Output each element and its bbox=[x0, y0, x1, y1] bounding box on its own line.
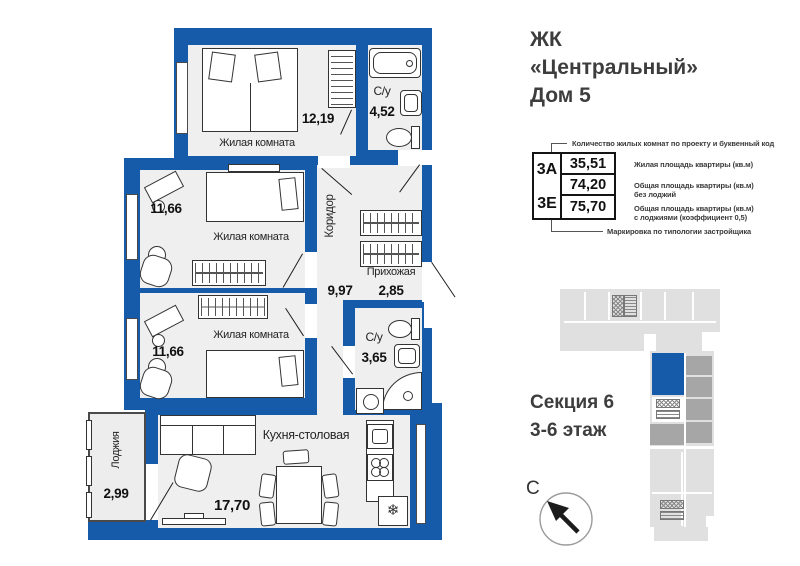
minimap-elevator-icon bbox=[656, 399, 680, 408]
toilet-icon bbox=[386, 128, 412, 147]
minimap-stairs-icon bbox=[612, 295, 624, 317]
minimap-elevator-icon bbox=[624, 295, 637, 317]
window bbox=[126, 194, 138, 260]
project-title-line1: ЖК bbox=[530, 26, 698, 54]
room-label: С/у bbox=[360, 330, 388, 344]
door-opening bbox=[305, 252, 317, 288]
minimap-divider bbox=[564, 321, 716, 323]
room-label: Прихожая bbox=[360, 266, 422, 278]
room-area: 9,97 bbox=[318, 283, 362, 298]
spec-note-living: Жилая площадь квартиры (кв.м) bbox=[634, 160, 794, 169]
door-opening bbox=[305, 304, 317, 338]
compass-north-label: С bbox=[526, 478, 540, 500]
pillow-icon bbox=[208, 51, 236, 82]
section-label-line1: Секция 6 bbox=[530, 392, 614, 414]
minimap-building-stem-foot bbox=[654, 527, 708, 541]
wardrobe-icon bbox=[198, 295, 268, 319]
washing-machine-icon bbox=[356, 388, 384, 414]
minimap-unit bbox=[686, 377, 712, 397]
minimap-notch bbox=[702, 332, 720, 351]
dining-table-icon bbox=[276, 466, 322, 524]
pillow-icon bbox=[278, 177, 298, 211]
minimap-divider bbox=[652, 492, 712, 494]
chair-icon bbox=[259, 501, 276, 526]
chair-icon bbox=[322, 501, 339, 526]
project-title-line3: Дом 5 bbox=[530, 82, 698, 110]
spec-type-cell: 3А 3Е bbox=[532, 152, 562, 220]
room-area: 11,66 bbox=[146, 344, 190, 359]
minimap-unit bbox=[686, 399, 712, 420]
type-code-bottom: 3Е bbox=[534, 196, 560, 212]
window bbox=[176, 62, 188, 134]
room-label: Жилая комната bbox=[192, 137, 322, 149]
room-area: 3,65 bbox=[354, 350, 394, 365]
minimap-divider bbox=[608, 292, 610, 320]
room-label: Кухня-столовая bbox=[246, 428, 366, 442]
door-opening bbox=[398, 150, 420, 166]
minimap-divider bbox=[692, 292, 694, 320]
pillow-icon bbox=[278, 355, 298, 387]
fridge-icon: ❄ bbox=[378, 496, 408, 526]
tv-stand-icon bbox=[162, 518, 226, 525]
spec-note-total-loggia: Общая площадь квартиры (кв.м) с лоджиями… bbox=[634, 204, 794, 222]
minimap-divider bbox=[650, 446, 714, 449]
minimap-divider bbox=[640, 292, 642, 320]
kitchen-sink-icon bbox=[367, 424, 393, 449]
spec-living-area-cell: 35,51 bbox=[560, 152, 616, 175]
tv-icon bbox=[184, 513, 204, 519]
minimap-divider bbox=[664, 292, 666, 320]
type-code-top: 3А bbox=[534, 162, 560, 178]
minimap-unit bbox=[686, 356, 712, 375]
room-label: Жилая комната bbox=[196, 329, 306, 341]
project-title: ЖК «Центральный» Дом 5 bbox=[530, 26, 698, 110]
pillow-icon bbox=[254, 51, 282, 82]
toilet-tank-icon bbox=[411, 126, 420, 149]
wardrobe-icon bbox=[192, 260, 266, 286]
room-area: 4,52 bbox=[362, 104, 402, 119]
minimap-highlighted-unit bbox=[652, 353, 684, 395]
room-label: С/у bbox=[368, 84, 396, 98]
wardrobe-icon bbox=[360, 210, 422, 236]
minimap-unit bbox=[686, 422, 712, 443]
minimap-divider bbox=[584, 292, 586, 320]
minimap-stairs-icon bbox=[660, 511, 684, 520]
minimap-notch bbox=[644, 334, 656, 351]
wardrobe-icon bbox=[328, 50, 356, 108]
room-label: Жилая комната bbox=[196, 231, 306, 243]
room-area: 2,99 bbox=[92, 486, 140, 501]
dresser-icon bbox=[228, 164, 280, 172]
chair-icon bbox=[321, 473, 339, 499]
loggia-window-frame bbox=[86, 420, 92, 450]
minimap-elevator-icon bbox=[660, 500, 684, 509]
floor-plan-page: ❄ Жилая комната 12,19 С/у 4,52 Жилая ком… bbox=[0, 0, 800, 566]
project-title-line2: «Центральный» bbox=[530, 54, 698, 82]
sink-icon bbox=[400, 90, 422, 116]
room-label: Коридор bbox=[324, 182, 336, 250]
corridor-passage-floor bbox=[317, 300, 343, 418]
minimap-stairs-icon bbox=[656, 410, 680, 419]
entry-door-swing bbox=[431, 262, 455, 297]
spec-callout-top: Количество жилых комнат по проекту и бук… bbox=[572, 139, 792, 148]
room-area: 12,19 bbox=[296, 111, 340, 126]
spec-note-total: Общая площадь квартиры (кв.м) без лоджий bbox=[634, 181, 794, 199]
loggia-window-frame bbox=[86, 456, 92, 486]
bathtub-icon bbox=[369, 48, 421, 78]
toilet-icon bbox=[388, 320, 412, 338]
entry-door-opening bbox=[422, 262, 434, 302]
room-area: 17,70 bbox=[206, 497, 258, 514]
callout-line bbox=[551, 143, 567, 144]
room-label: Лоджия bbox=[110, 418, 122, 482]
room-area: 2,85 bbox=[360, 283, 422, 298]
wardrobe-icon bbox=[360, 241, 422, 267]
minimap-notch bbox=[706, 516, 714, 527]
window bbox=[126, 318, 138, 380]
room-area: 11,66 bbox=[144, 201, 188, 216]
wall-notch bbox=[424, 302, 432, 328]
window bbox=[416, 424, 426, 524]
toilet-tank-icon bbox=[411, 318, 420, 340]
section-label-line2: 3-6 этаж bbox=[530, 420, 606, 442]
door-opening bbox=[318, 156, 350, 168]
stove-icon bbox=[367, 454, 393, 481]
sink-icon bbox=[394, 344, 420, 368]
spec-total-loggia-cell: 75,70 bbox=[560, 194, 616, 220]
callout-line bbox=[551, 231, 603, 232]
spec-callout-bottom: Маркировка по типологии застройщика bbox=[607, 227, 797, 236]
sofa-icon bbox=[160, 415, 256, 455]
minimap-unit bbox=[650, 424, 684, 445]
chair-icon bbox=[283, 449, 310, 465]
spec-total-area-cell: 74,20 bbox=[560, 173, 616, 196]
